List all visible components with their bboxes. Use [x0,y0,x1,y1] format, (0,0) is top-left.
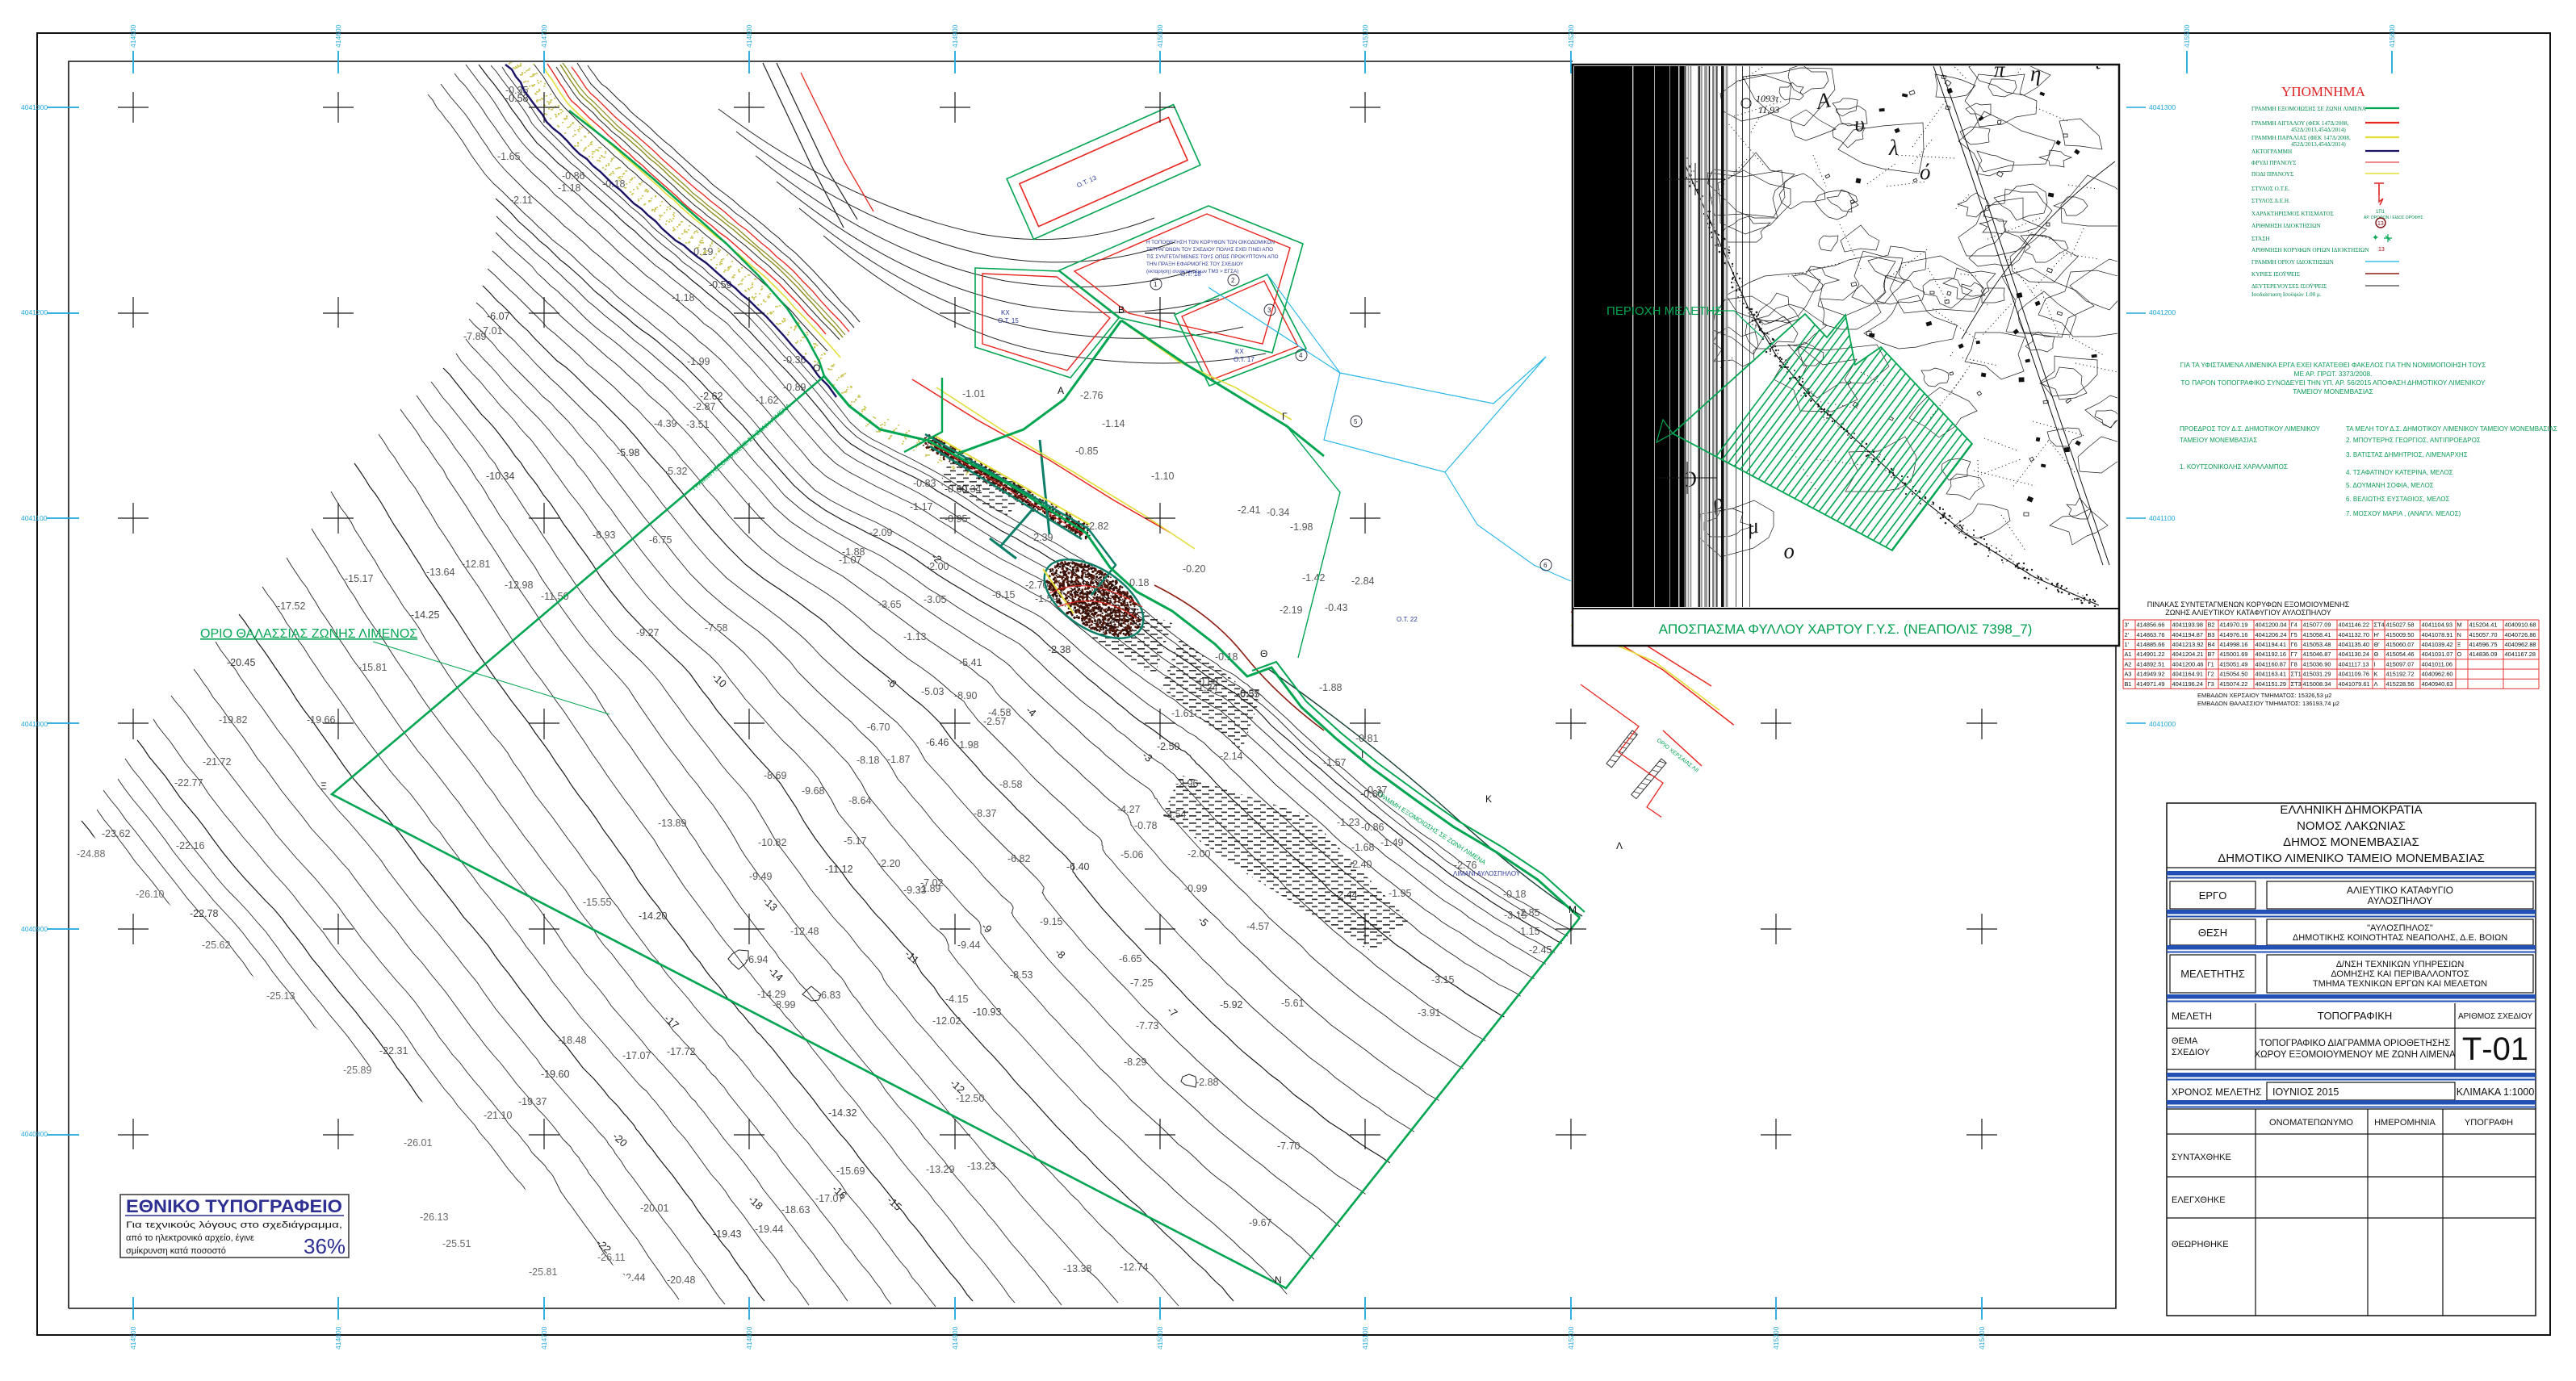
svg-text:-2.87: -2.87 [693,401,716,412]
svg-text:-5.41: -5.41 [959,657,982,668]
svg-text:5. ΔΟΥΜΑΝΗ ΣΟΦΙΑ, ΜΕΛΟΣ: 5. ΔΟΥΜΑΝΗ ΣΟΦΙΑ, ΜΕΛΟΣ [2346,482,2434,489]
svg-text:-12.02: -12.02 [932,1015,961,1027]
svg-text:4041000: 4041000 [2149,720,2176,728]
svg-text:-2.45: -2.45 [1529,944,1552,956]
svg-text:ΤΟ ΠΑΡΟΝ ΤΟΠΟΓΡΑΦΙΚΟ ΣΥΝΟΔΕΥΕΙ: ΤΟ ΠΑΡΟΝ ΤΟΠΟΓΡΑΦΙΚΟ ΣΥΝΟΔΕΥΕΙ ΤΗΝ ΥΠ. Α… [2180,379,2486,387]
svg-text:Γ2: Γ2 [2208,671,2214,678]
svg-text:-6.82: -6.82 [1007,853,1031,864]
svg-text:Α3: Α3 [2125,671,2132,678]
svg-text:-12.74: -12.74 [1120,1262,1148,1273]
svg-text:-8.99: -8.99 [773,999,796,1011]
svg-text:7. ΜΟΣΧΟΥ ΜΑΡΙΑ , (ΑΝΑΠΛ. ΜΕΛΟ: 7. ΜΟΣΧΟΥ ΜΑΡΙΑ , (ΑΝΑΠΛ. ΜΕΛΟΣ) [2346,510,2461,517]
svg-text:414700: 414700 [540,24,548,48]
svg-text:452Δ/2013,454Δ/2014): 452Δ/2013,454Δ/2014) [2291,141,2346,148]
svg-text:ΦΡΥΔΙ ΠΡΑΝΟΥΣ: ΦΡΥΔΙ ΠΡΑΝΟΥΣ [2251,160,2296,166]
svg-text:415009.50: 415009.50 [2386,631,2415,638]
svg-text:ΤΟΠΟΓΡΑΦΙΚΗ: ΤΟΠΟΓΡΑΦΙΚΗ [2318,1010,2393,1022]
svg-text:-1.14: -1.14 [1102,418,1125,429]
svg-text:Ισοδιάσταση Ισοϋψών 1.00 μ.: Ισοδιάσταση Ισοϋψών 1.00 μ. [2251,291,2322,298]
svg-text:-18.63: -18.63 [781,1204,810,1216]
svg-text:Λ: Λ [2374,680,2378,688]
svg-text:-7.73: -7.73 [1136,1020,1159,1032]
svg-text:415600: 415600 [2388,24,2396,48]
svg-text:Ο.Τ. 15: Ο.Τ. 15 [998,317,1019,324]
svg-text:-20.01: -20.01 [640,1203,668,1214]
svg-text:-1.62: -1.62 [756,395,779,406]
svg-text:ΛΙΜΑΝΙ ΑΥΛΟΣΠΗΛΟΥ: ΛΙΜΑΝΙ ΑΥΛΟΣΠΗΛΟΥ [1453,870,1521,877]
svg-text:13: 13 [2378,247,2385,253]
svg-text:415054.50: 415054.50 [2220,671,2248,678]
svg-text:ΚΧ: ΚΧ [1001,309,1010,316]
svg-text:4041164.91: 4041164.91 [2172,671,2204,678]
svg-text:-8.18: -8.18 [857,755,880,766]
svg-text:36%: 36% [304,1234,346,1258]
svg-text:415228.56: 415228.56 [2386,680,2415,688]
svg-text:6: 6 [1544,562,1548,569]
svg-text:-15.55: -15.55 [583,897,611,908]
svg-text:415051.49: 415051.49 [2220,660,2248,667]
svg-text:-0.59: -0.59 [709,279,732,291]
svg-text:4041100: 4041100 [2149,514,2176,522]
svg-text:-14.20: -14.20 [639,910,667,922]
svg-text:-8.93: -8.93 [593,529,616,541]
svg-text:414500: 414500 [129,24,137,48]
svg-text:-1.07: -1.07 [839,554,862,566]
svg-text:-9.15: -9.15 [1040,916,1063,927]
svg-text:-8.90: -8.90 [954,690,978,701]
svg-text:ΑΡΙΘΜΟΣ ΣΧΕΔΙΟΥ: ΑΡΙΘΜΟΣ ΣΧΕΔΙΟΥ [2458,1012,2532,1021]
svg-text:-5.17: -5.17 [844,835,867,847]
svg-text:ΘΕΩΡΗΘΗΚΕ: ΘΕΩΡΗΘΗΚΕ [2172,1240,2229,1249]
svg-text:4041117.13: 4041117.13 [2339,660,2369,667]
svg-text:4040910.68: 4040910.68 [2505,621,2536,629]
svg-text:Μ: Μ [1569,904,1577,915]
svg-text:ΚΥΡΙΕΣ ΙΣΟΫΨΕΙΣ: ΚΥΡΙΕΣ ΙΣΟΫΨΕΙΣ [2251,270,2300,278]
svg-text:-4.39: -4.39 [654,418,677,429]
svg-text:415097.07: 415097.07 [2386,660,2415,667]
svg-text:-0.20: -0.20 [1183,563,1206,575]
svg-text:Γ5: Γ5 [2291,631,2297,638]
svg-text:415036.90: 415036.90 [2303,660,2331,667]
svg-text:Β3: Β3 [2208,631,2215,638]
svg-text:-19.37: -19.37 [518,1096,547,1107]
svg-text:ΔΗΜΟΤΙΚΟ ΛΙΜΕΝΙΚΟ ΤΑΜΕΙΟ ΜΟΝΕΜ: ΔΗΜΟΤΙΚΟ ΛΙΜΕΝΙΚΟ ΤΑΜΕΙΟ ΜΟΝΕΜΒΑΣΙΑΣ [2218,852,2484,865]
svg-text:ΔΗΜΟΤΙΚΗΣ ΚΟΙΝΟΤΗΤΑΣ ΝΕΑΠΟΛΗΣ,: ΔΗΜΟΤΙΚΗΣ ΚΟΙΝΟΤΗΤΑΣ ΝΕΑΠΟΛΗΣ, Δ.Ε. ΒΟΙΩ… [2293,933,2507,943]
svg-text:-9.67: -9.67 [1249,1217,1272,1228]
svg-text:4041213.92: 4041213.92 [2172,641,2204,648]
svg-text:415200: 415200 [1567,1326,1575,1350]
svg-text:ΑΚΤΟΓΡΑΜΜΗ: ΑΚΤΟΓΡΑΜΜΗ [2251,149,2292,155]
svg-text:-1.10: -1.10 [1151,471,1175,482]
svg-text:414949.92: 414949.92 [2137,671,2165,678]
svg-text:4041039.42: 4041039.42 [2422,641,2453,648]
svg-text:414836.09: 414836.09 [2469,651,2498,658]
svg-text:ΣΤΥΛΟΣ Δ.Ε.Η.: ΣΤΥΛΟΣ Δ.Ε.Η. [2251,198,2290,204]
svg-text:-10.82: -10.82 [758,837,786,848]
svg-text:415074.22: 415074.22 [2220,680,2248,688]
svg-text:ΚΧ: ΚΧ [1235,348,1244,355]
svg-text:-9.44: -9.44 [957,939,981,951]
svg-text:-0.95: -0.95 [945,513,968,525]
svg-text:ΤΜΗΜΑ ΤΕΧΝΙΚΩΝ ΕΡΓΩΝ ΚΑΙ ΜΕΛΕΤ: ΤΜΗΜΑ ΤΕΧΝΙΚΩΝ ΕΡΓΩΝ ΚΑΙ ΜΕΛΕΤΩΝ [2313,979,2487,989]
svg-text:-19.44: -19.44 [755,1224,783,1235]
svg-text:11,93: 11,93 [1758,104,1779,115]
svg-text:ΠΙΝΑΚΑΣ ΣΥΝΤΕΤΑΓΜΕΝΩΝ ΚΟΡΥΦΩΝ: ΠΙΝΑΚΑΣ ΣΥΝΤΕΤΑΓΜΕΝΩΝ ΚΟΡΥΦΩΝ ΕΞΟΜΟΙΟΥΜΕ… [2147,601,2350,609]
svg-text:Β: Β [1118,304,1125,316]
svg-text:414800: 414800 [745,24,753,48]
svg-text:Β2: Β2 [2208,621,2215,629]
svg-text:ΖΩΝΗΣ ΑΛΙΕΥΤΙΚΟΥ ΚΑΤΑΦΥΓΙΟΥ ΑΥ: ΖΩΝΗΣ ΑΛΙΕΥΤΙΚΟΥ ΚΑΤΑΦΥΓΙΟΥ ΑΥΛΟΣΠΗΛΟΥ [2165,609,2331,617]
svg-text:4041160.87: 4041160.87 [2256,660,2287,667]
svg-text:-9.27: -9.27 [636,627,660,638]
svg-text:-1.57: -1.57 [1323,757,1347,768]
svg-text:2': 2' [2125,631,2130,638]
svg-text:415031.29: 415031.29 [2303,671,2331,678]
svg-text:1': 1' [2125,641,2130,648]
svg-text:-24.88: -24.88 [77,848,105,860]
svg-text:4041135.40: 4041135.40 [2339,641,2370,648]
svg-text:-8.69: -8.69 [764,770,787,781]
svg-text:-0.43: -0.43 [1325,602,1348,613]
svg-text:ΠΕΡΙΟΧΗ ΜΕΛΕΤΗΣ: ΠΕΡΙΟΧΗ ΜΕΛΕΤΗΣ [1606,304,1722,318]
svg-text:-2.11: -2.11 [510,195,533,206]
svg-text:-2.88: -2.88 [1196,1077,1219,1088]
svg-text:-5.61: -5.61 [1281,998,1305,1009]
svg-text:Λ: Λ [1616,840,1623,852]
svg-text:ο: ο [1782,538,1795,563]
svg-text:4: 4 [1299,352,1303,359]
svg-text:Ο: Ο [2457,651,2462,658]
svg-text:-2.50: -2.50 [1157,741,1180,752]
svg-text:-25.62: -25.62 [202,939,230,951]
svg-text:4040962.60: 4040962.60 [2422,671,2453,678]
svg-text:-7.70: -7.70 [1277,1140,1301,1152]
svg-text:Γ4: Γ4 [2291,621,2297,629]
svg-text:-12.48: -12.48 [790,926,819,937]
svg-text:ΕΛΕΓΧΘΗΚΕ: ΕΛΕΓΧΘΗΚΕ [2172,1195,2226,1205]
svg-text:-3.05: -3.05 [924,594,947,605]
svg-text:-0.18: -0.18 [1503,889,1527,900]
svg-text:Γ3: Γ3 [2208,680,2214,688]
svg-text:ΓΡΑΜΜΗ ΕΞΟΜΟΙΩΣΗΣ ΣΕ ΖΩΝΗ ΛΙΜΕ: ΓΡΑΜΜΗ ΕΞΟΜΟΙΩΣΗΣ ΣΕ ΖΩΝΗ ΛΙΜΕΝΑ [2251,106,2367,112]
svg-text:ΓΡΑΜΜΗ ΠΑΡΑΛΙΑΣ (ΦΕΚ 147Δ/2008: ΓΡΑΜΜΗ ΠΑΡΑΛΙΑΣ (ΦΕΚ 147Δ/2008, [2251,135,2351,141]
svg-text:✦: ✦ [2372,233,2379,243]
svg-text:4041192.16: 4041192.16 [2256,651,2287,658]
svg-text:Η': Η' [2374,631,2380,638]
svg-text:415027.58: 415027.58 [2386,621,2415,629]
svg-text:Α2: Α2 [2125,660,2132,667]
svg-text:6. ΒΕΛΙΩΤΗΣ ΕΥΣΤΑΘΙΟΣ, ΜΕΛΟΣ: 6. ΒΕΛΙΩΤΗΣ ΕΥΣΤΑΘΙΟΣ, ΜΕΛΟΣ [2346,496,2449,503]
svg-text:Γ8: Γ8 [2291,660,2297,667]
svg-text:415000: 415000 [1156,24,1164,48]
svg-text:-2.76: -2.76 [1454,860,1477,871]
svg-text:4041206.24: 4041206.24 [2256,631,2287,638]
svg-text:1. ΚΟΥΤΣΟΝΙΚΟΛΗΣ ΧΑΡΑΛΑΜΠΟΣ: 1. ΚΟΥΤΣΟΝΙΚΟΛΗΣ ΧΑΡΑΛΑΜΠΟΣ [2180,463,2288,471]
svg-text:ΓΙΑ ΤΑ ΥΦΙΣΤΑΜΕΝΑ ΛΙΜΕΝΙΚΑ ΕΡΓ: ΓΙΑ ΤΑ ΥΦΙΣΤΑΜΕΝΑ ΛΙΜΕΝΙΚΑ ΕΡΓΑ ΕΧΕΙ ΚΑΤ… [2180,361,2486,369]
svg-text:-2.38: -2.38 [1048,644,1071,655]
svg-text:-13.23: -13.23 [967,1161,995,1172]
svg-text:-1.98: -1.98 [956,739,979,751]
svg-text:-1.88: -1.88 [1319,682,1342,693]
svg-text:415400: 415400 [1978,1326,1986,1350]
svg-text:-2.00: -2.00 [1187,848,1211,860]
svg-text:4041196.24: 4041196.24 [2172,680,2204,688]
svg-text:-8.29: -8.29 [1124,1057,1147,1068]
svg-text:-2.76: -2.76 [1080,390,1104,401]
svg-text:-22.16: -22.16 [176,840,204,852]
svg-text:-1.99: -1.99 [687,356,710,367]
svg-text:Ο.Τ. 22: Ο.Τ. 22 [1397,616,1418,623]
svg-text:-22.31: -22.31 [379,1045,408,1057]
svg-text:-0.34: -0.34 [1267,507,1290,518]
svg-text:415200: 415200 [1567,24,1575,48]
svg-text:ΤΑΜΕΙΟΥ ΜΟΝΕΜΒΑΣΙΑΣ: ΤΑΜΕΙΟΥ ΜΟΝΕΜΒΑΣΙΑΣ [2293,387,2373,395]
svg-text:ΑΡΙΘΜΗΣΗ ΙΔΙΟΚΤΗΣΙΩΝ: ΑΡΙΘΜΗΣΗ ΙΔΙΟΚΤΗΣΙΩΝ [2251,223,2321,229]
svg-text:ΣΤΥΛΟΣ Ο.Τ.Ε.: ΣΤΥΛΟΣ Ο.Τ.Ε. [2251,186,2290,192]
svg-text:-7.02: -7.02 [920,877,944,889]
svg-text:-0.78: -0.78 [1134,820,1158,831]
svg-text:Γ6: Γ6 [2291,641,2297,648]
svg-text:-8.58: -8.58 [999,779,1023,790]
svg-text:ΑΡΙΘΜΗΣΗ ΚΟΡΥΦΩΝ ΟΡΙΩΝ ΙΔΙΟΚΤΗ: ΑΡΙΘΜΗΣΗ ΚΟΡΥΦΩΝ ΟΡΙΩΝ ΙΔΙΟΚΤΗΣΙΩΝ [2251,247,2369,253]
svg-text:ΑΥΛΟΣΠΗΛΟΥ: ΑΥΛΟΣΠΗΛΟΥ [2368,895,2433,906]
svg-text:-13.38: -13.38 [1063,1263,1091,1274]
svg-text:414901.22: 414901.22 [2137,651,2165,658]
svg-text:415100: 415100 [1361,24,1369,48]
svg-text:414596.75: 414596.75 [2469,641,2498,648]
svg-text:-17.72: -17.72 [667,1046,695,1057]
svg-text:-19.60: -19.60 [541,1069,569,1080]
svg-text:-25.81: -25.81 [529,1266,557,1278]
svg-text:415054.46: 415054.46 [2386,651,2415,658]
svg-text:-6.70: -6.70 [867,722,890,733]
svg-text:-4.57: -4.57 [1246,921,1270,932]
svg-text:-9.49: -9.49 [749,871,773,882]
svg-text:Ι: Ι [1361,749,1363,760]
svg-text:-14.32: -14.32 [828,1107,857,1119]
svg-text:4041200.46: 4041200.46 [2172,660,2204,667]
svg-text:4041132.70: 4041132.70 [2339,631,2370,638]
svg-text:Β4: Β4 [2208,641,2215,648]
svg-text:Μ: Μ [2457,621,2462,629]
svg-text:ΣΥΝΤΑΧΘΗΚΕ: ΣΥΝΤΑΧΘΗΚΕ [2172,1153,2231,1162]
svg-text:-20.48: -20.48 [667,1274,695,1286]
svg-text:ΝΟΜΟΣ ΛΑΚΩΝΙΑΣ: ΝΟΜΟΣ ΛΑΚΩΝΙΑΣ [2297,819,2406,833]
svg-text:414885.66: 414885.66 [2137,641,2165,648]
svg-text:-1.18: -1.18 [558,182,581,194]
svg-text:ΑΡ. ΟΡΟΦΩΝ / ΕΙΔΟΣ ΟΡΟΦΗΣ: ΑΡ. ΟΡΟΦΩΝ / ΕΙΔΟΣ ΟΡΟΦΗΣ [2364,216,2423,220]
svg-text:2: 2 [1231,277,1235,284]
svg-text:414900: 414900 [951,1326,959,1350]
svg-text:-4.15: -4.15 [945,994,969,1005]
svg-text:-6.65: -6.65 [1119,953,1142,965]
svg-text:415192.72: 415192.72 [2386,671,2415,678]
svg-text:414976.16: 414976.16 [2220,631,2248,638]
svg-text:ΣΤ1: ΣΤ1 [2291,671,2302,678]
svg-text:-0.86: -0.86 [1361,822,1384,833]
svg-text:ΠΟΔΙ ΠΡΑΝΟΥΣ: ΠΟΔΙ ΠΡΑΝΟΥΣ [2251,171,2293,178]
svg-text:-12.98: -12.98 [505,580,533,591]
svg-text:-1.87: -1.87 [887,754,911,765]
svg-text:Ν: Ν [1275,1274,1282,1286]
svg-text:-2.19: -2.19 [1280,605,1303,616]
svg-text:414971.49: 414971.49 [2137,680,2165,688]
svg-text:ΔΗΜΟΣ ΜΟΝΕΜΒΑΣΙΑΣ: ΔΗΜΟΣ ΜΟΝΕΜΒΑΣΙΑΣ [2283,835,2419,849]
svg-text:-18.48: -18.48 [558,1035,586,1046]
svg-text:414856.66: 414856.66 [2137,621,2165,629]
svg-text:-2.41: -2.41 [1238,504,1261,516]
svg-text:-1.49: -1.49 [1380,837,1404,848]
svg-text:13: 13 [2377,221,2384,227]
svg-text:-17.52: -17.52 [277,601,305,612]
svg-text:ΑΠΟΣΠΑΣΜΑ ΦΥΛΛΟΥ ΧΑΡΤΟΥ Γ.Υ.Σ.: ΑΠΟΣΠΑΣΜΑ ΦΥΛΛΟΥ ΧΑΡΤΟΥ Γ.Υ.Σ. (ΝΕΑΠΟΛΙΣ… [1659,621,2033,637]
svg-text:-14.29: -14.29 [757,989,785,1000]
svg-text:-1.95: -1.95 [1389,888,1412,899]
svg-text:-25.89: -25.89 [343,1065,371,1076]
svg-text:4040800: 4040800 [21,1130,48,1138]
svg-text:ΕΡΓΟ: ΕΡΓΟ [2199,889,2227,902]
svg-text:-0.83: -0.83 [913,478,936,489]
svg-text:-26.10: -26.10 [136,889,164,900]
svg-text:4040726.86: 4040726.86 [2505,631,2536,638]
svg-text:ΧΑΡΑΚΤΗΡΙΣΜΟΣ ΚΤΙΣΜΑΤΟΣ: ΧΑΡΑΚΤΗΡΙΣΜΟΣ ΚΤΙΣΜΑΤΟΣ [2251,211,2334,217]
svg-text:-23.62: -23.62 [102,828,130,839]
svg-text:ΣΤ4: ΣΤ4 [2374,621,2385,629]
svg-text:-2.84: -2.84 [1351,575,1375,587]
svg-text:3. ΒΑΤΙΣΤΑΣ ΔΗΜΗΤΡΙΟΣ, ΛΙΜΕΝΑΡ: 3. ΒΑΤΙΣΤΑΣ ΔΗΜΗΤΡΙΟΣ, ΛΙΜΕΝΑΡΧΗΣ [2346,451,2468,458]
svg-text:414892.51: 414892.51 [2137,660,2165,667]
svg-text:-19.82: -19.82 [219,714,247,726]
svg-text:ΥΠΟΓΡΑΦΗ: ΥΠΟΓΡΑΦΗ [2465,1118,2513,1128]
svg-text:-26.01: -26.01 [404,1137,432,1149]
svg-text:4041104.93: 4041104.93 [2422,621,2453,629]
svg-text:-21.72: -21.72 [203,756,231,768]
svg-text:υ: υ [1853,111,1866,136]
svg-text:-2.85: -2.85 [1517,907,1540,919]
svg-text:ΣΤ3: ΣΤ3 [2291,680,2302,688]
svg-text:-5.98: -5.98 [617,447,640,458]
svg-text:414863.76: 414863.76 [2137,631,2165,638]
svg-text:414600: 414600 [334,24,342,48]
svg-text:415057.70: 415057.70 [2469,631,2498,638]
svg-text:-19.66: -19.66 [307,714,335,726]
svg-text:-2.14: -2.14 [1220,751,1243,762]
svg-text:ΜΕ ΑΡ. ΠΡΩΤ. 3373/2008.: ΜΕ ΑΡ. ΠΡΩΤ. 3373/2008. [2294,370,2373,378]
svg-text:-19.43: -19.43 [713,1228,741,1240]
svg-text:4041079.61: 4041079.61 [2339,680,2370,688]
svg-text:-1.65: -1.65 [497,151,521,162]
svg-text:1093τ: 1093τ [1756,93,1779,104]
svg-text:Ο.Τ. 17: Ο.Τ. 17 [1234,356,1254,363]
svg-text:-12.81: -12.81 [462,559,490,570]
svg-text:-1.23: -1.23 [1337,817,1360,828]
svg-text:ΠΡΟΕΔΡΟΣ ΤΟΥ Δ.Σ. ΔΗΜΟΤΙΚΟΥ ΛΙ: ΠΡΟΕΔΡΟΣ ΤΟΥ Δ.Σ. ΔΗΜΟΤΙΚΟΥ ΛΙΜΕΝΙΚΟΥ [2180,425,2321,433]
svg-text:Τ-01: Τ-01 [2462,1032,2528,1067]
svg-text:1Π1: 1Π1 [2376,210,2385,215]
svg-text:ΤΗΝ ΠΡΑΞΗ ΕΦΑΡΜΟΓΗΣ ΤΟΥ ΣΧΕΔΙΟ: ΤΗΝ ΠΡΑΞΗ ΕΦΑΡΜΟΓΗΣ ΤΟΥ ΣΧΕΔΙΟΥ [1146,262,1244,267]
svg-text:4041200.04: 4041200.04 [2256,621,2287,629]
svg-text:414800: 414800 [745,1326,753,1350]
svg-text:415046.87: 415046.87 [2303,651,2331,658]
svg-text:4041167.28: 4041167.28 [2505,651,2536,658]
svg-text:4040962.88: 4040962.88 [2505,641,2536,648]
svg-text:-6.83: -6.83 [818,990,841,1001]
svg-text:4040940.63: 4040940.63 [2422,680,2453,688]
svg-text:-15.69: -15.69 [836,1165,865,1177]
svg-text:Γ7: Γ7 [2291,651,2297,658]
svg-text:ΥΠΟΜΝΗΜΑ: ΥΠΟΜΝΗΜΑ [2281,84,2366,99]
svg-text:-8.64: -8.64 [848,795,872,806]
svg-text:-6.94: -6.94 [745,954,769,965]
svg-text:-26.11: -26.11 [597,1252,626,1263]
svg-text:-15.81: -15.81 [358,662,387,673]
svg-text:415000: 415000 [1156,1326,1164,1350]
svg-text:-9.68: -9.68 [802,785,825,797]
svg-text:4041200: 4041200 [21,308,48,316]
svg-text:452Δ/2013,454Δ/2014): 452Δ/2013,454Δ/2014) [2291,127,2346,133]
svg-text:-13.29: -13.29 [926,1164,954,1175]
svg-text:από το ηλεκτρονικό αρχείο,: από το ηλεκτρονικό αρχείο, έγινε [126,1233,254,1243]
svg-text:-1.17: -1.17 [910,501,933,513]
svg-text:Β7: Β7 [2208,651,2215,658]
svg-text:-1.98: -1.98 [1290,521,1313,533]
svg-text:Γ1: Γ1 [2208,660,2214,667]
svg-text:ΤΙΣ ΣΥΝΤΕΤΑΓΜΕΝΕΣ ΤΟΥΣ ΟΠΩΣ ΠΡ: ΤΙΣ ΣΥΝΤΕΤΑΓΜΕΝΕΣ ΤΟΥΣ ΟΠΩΣ ΠΡΟΚΥΠΤΟΥΝ Α… [1146,254,1279,260]
svg-text:-5.32: -5.32 [664,466,688,477]
svg-text:ΣΤΑΣΗ: ΣΤΑΣΗ [2251,236,2270,242]
svg-text:ΧΡΟΝΟΣ ΜΕΛΕΤΗΣ: ΧΡΟΝΟΣ ΜΕΛΕΤΗΣ [2172,1086,2262,1098]
svg-text:ΙΟΥΝΙΟΣ 2015: ΙΟΥΝΙΟΣ 2015 [2272,1086,2339,1098]
svg-text:4041130.24: 4041130.24 [2339,651,2370,658]
svg-text:Θ: Θ [1260,648,1267,659]
svg-text:-25.51: -25.51 [442,1238,471,1249]
svg-text:-7.58: -7.58 [705,622,728,634]
svg-text:414500: 414500 [129,1326,137,1350]
svg-text:-5.06: -5.06 [1120,849,1144,860]
svg-text:ό: ό [1920,160,1931,184]
svg-text:3: 3 [1267,307,1271,314]
svg-text:-2.62: -2.62 [700,391,723,402]
svg-text:-8.37: -8.37 [974,808,997,819]
svg-text:ΚΛΙΜΑΚΑ 1:1000: ΚΛΙΜΑΚΑ 1:1000 [2457,1086,2535,1098]
svg-text:Κ: Κ [1485,793,1492,805]
svg-text:ΜΕΛΕΤΗ: ΜΕΛΕΤΗ [2172,1011,2212,1022]
svg-text:-1.15: -1.15 [1517,926,1540,937]
svg-text:-22.78: -22.78 [190,908,218,919]
svg-text:ΓΡΑΜΜΗ ΑΙΓΙΑΛΟΥ (ΦΕΚ 147Δ/2008: ΓΡΑΜΜΗ ΑΙΓΙΑΛΟΥ (ΦΕΚ 147Δ/2008, [2251,120,2349,127]
svg-text:4041100: 4041100 [21,514,48,522]
svg-text:Α1: Α1 [2125,651,2132,658]
svg-text:Ν: Ν [2457,631,2461,638]
svg-text:414998.16: 414998.16 [2220,641,2248,648]
svg-text:4041011.06: 4041011.06 [2422,660,2453,667]
svg-text:4041194.41: 4041194.41 [2256,641,2287,648]
svg-text:415300: 415300 [1772,1326,1780,1350]
svg-text:ΔΕΥΤΕΡΕΥΟΥΣΕΣ ΙΣΟΫΨΕΙΣ: ΔΕΥΤΕΡΕΥΟΥΣΕΣ ΙΣΟΫΨΕΙΣ [2251,282,2327,290]
svg-text:-3.15: -3.15 [1431,974,1455,986]
svg-text:ΤΑ ΜΕΛΗ ΤΟΥ Δ.Σ. ΔΗΜΟΤΙΚΟΥ ΛΙΜ: ΤΑ ΜΕΛΗ ΤΟΥ Δ.Σ. ΔΗΜΟΤΙΚΟΥ ΛΙΜΕΝΙΚΟΥ ΤΑΜ… [2346,425,2557,433]
svg-text:ΕΛΛΗΝΙΚΗ ΔΗΜΟΚΡΑΤΙΑ: ΕΛΛΗΝΙΚΗ ΔΗΜΟΚΡΑΤΙΑ [2280,803,2422,817]
svg-text:Α: Α [1058,385,1064,396]
svg-text:-15.17: -15.17 [345,573,373,584]
svg-text:-13.89: -13.89 [658,818,686,829]
svg-text:2. ΜΠΟΥΤΕΡΗΣ ΓΕΩΡΓΙΟΣ, ΑΝΤΙΠΡΟ: 2. ΜΠΟΥΤΕΡΗΣ ΓΕΩΡΓΙΟΣ, ΑΝΤΙΠΡΟΕΔΡΟΣ [2346,437,2481,444]
svg-text:-26.13: -26.13 [420,1212,448,1223]
svg-text:-8.53: -8.53 [1010,969,1033,981]
svg-text:4041078.91: 4041078.91 [2422,631,2453,638]
svg-text:ΑΛΙΕΥΤΙΚΟ ΚΑΤΑΦΥΓΙΟ: ΑΛΙΕΥΤΙΚΟ ΚΑΤΑΦΥΓΙΟ [2347,885,2453,896]
svg-text:Ι: Ι [2374,660,2376,667]
